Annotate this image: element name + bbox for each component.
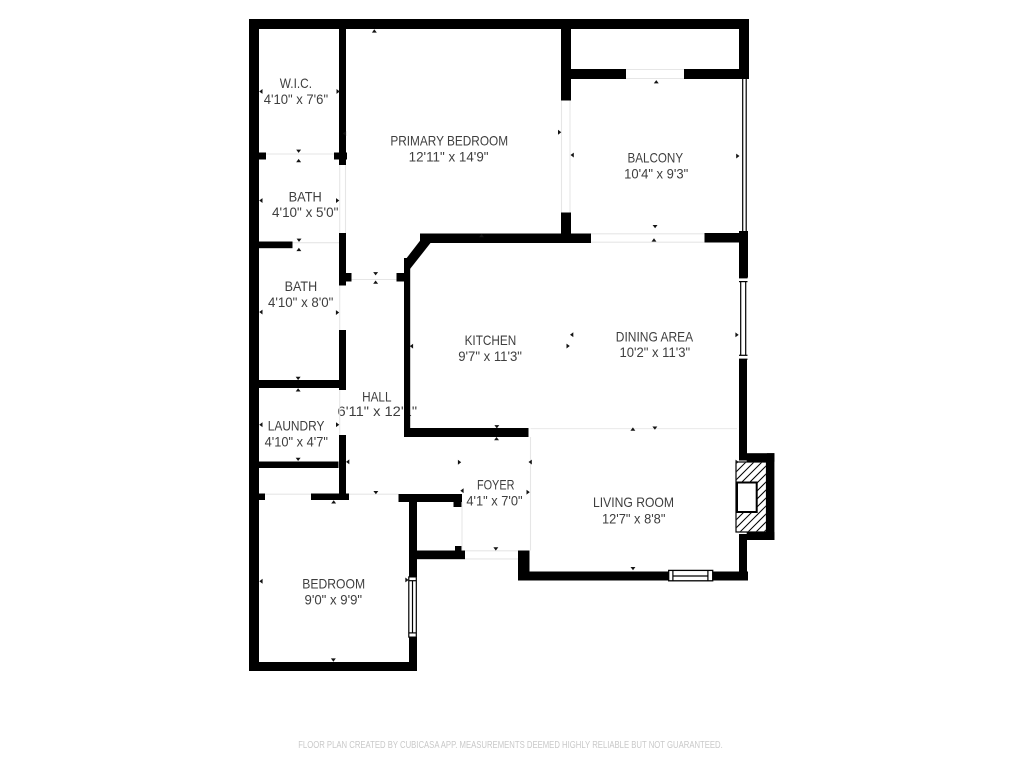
svg-text:PRIMARY BEDROOM: PRIMARY BEDROOM [390, 133, 508, 149]
svg-text:W.I.C.: W.I.C. [280, 75, 312, 91]
svg-text:12'7" x 8'8": 12'7" x 8'8" [602, 510, 665, 526]
svg-text:KITCHEN: KITCHEN [465, 332, 517, 348]
svg-text:10'4" x 9'3": 10'4" x 9'3" [624, 165, 688, 181]
svg-text:BATH: BATH [289, 189, 322, 205]
svg-text:4'10" x 8'0": 4'10" x 8'0" [268, 294, 333, 310]
svg-text:LIVING ROOM: LIVING ROOM [593, 494, 674, 510]
svg-text:DINING AREA: DINING AREA [616, 328, 694, 344]
svg-text:FLOOR PLAN CREATED BY CUBICASA: FLOOR PLAN CREATED BY CUBICASA APP. MEAS… [298, 740, 723, 751]
svg-text:10'2" x 11'3": 10'2" x 11'3" [619, 344, 690, 360]
svg-text:BALCONY: BALCONY [628, 149, 684, 165]
svg-text:FOYER: FOYER [477, 477, 515, 493]
svg-text:12'11" x 14'9": 12'11" x 14'9" [409, 149, 489, 165]
svg-text:4'10" x 4'7": 4'10" x 4'7" [265, 434, 328, 450]
svg-text:BATH: BATH [285, 278, 318, 294]
svg-text:9'7" x 11'3": 9'7" x 11'3" [458, 348, 522, 364]
svg-text:BEDROOM: BEDROOM [302, 576, 365, 592]
svg-text:4'10" x 7'6": 4'10" x 7'6" [264, 91, 328, 107]
svg-text:4'10" x 5'0": 4'10" x 5'0" [272, 204, 338, 220]
svg-text:LAUNDRY: LAUNDRY [268, 418, 325, 434]
svg-text:4'1" x 7'0": 4'1" x 7'0" [466, 492, 522, 508]
svg-text:HALL: HALL [362, 388, 392, 404]
svg-text:9'0" x 9'9": 9'0" x 9'9" [305, 591, 363, 607]
